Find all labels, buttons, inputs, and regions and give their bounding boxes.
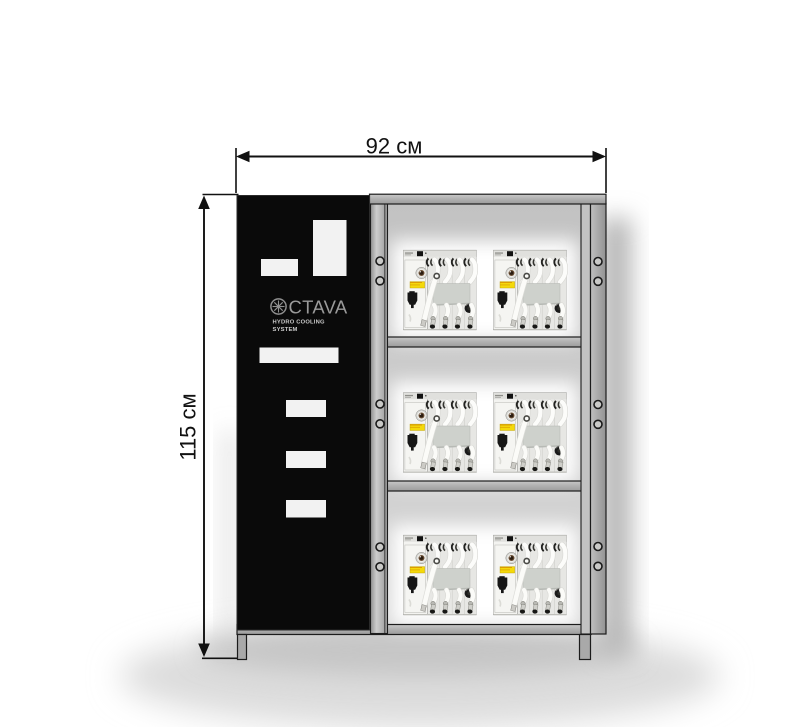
svg-text:115 см: 115 см (176, 393, 201, 460)
svg-text:92 см: 92 см (366, 134, 423, 159)
svg-text:SYSTEM: SYSTEM (273, 327, 298, 333)
svg-text:HYDRO COOLING: HYDRO COOLING (273, 320, 325, 326)
svg-text:CTAVA: CTAVA (289, 297, 348, 318)
